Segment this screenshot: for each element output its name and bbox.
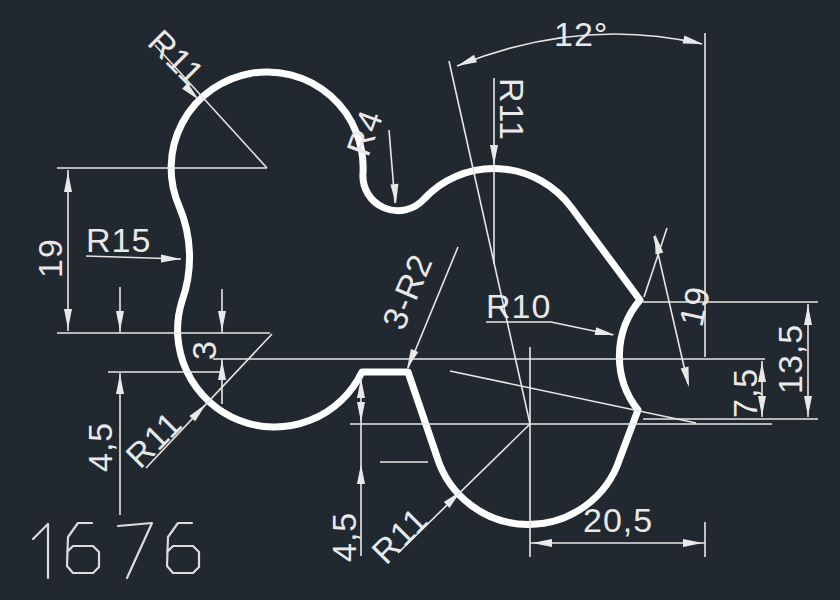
label-offset-right-lower: 7,5	[726, 368, 764, 418]
label-radius-top-left: R11	[141, 22, 212, 93]
label-angle-top: 12°	[554, 15, 608, 53]
label-radius-bottom-right: R11	[364, 500, 435, 571]
label-height-left: 19	[31, 238, 69, 278]
label-radius-bottom-left: R11	[118, 404, 189, 475]
label-width-bottom: 20,5	[583, 501, 653, 539]
drawing-number-digit	[167, 523, 199, 573]
label-offset-right-upper: 13,5	[771, 324, 809, 394]
label-radius-left-waist: R15	[86, 221, 151, 259]
label-radius-top-right: R11	[493, 78, 531, 141]
label-height-right: 19	[672, 283, 717, 330]
cad-drawing: R11 R11 R11 R11 R15 R4 R10 3-R2 12° 19 1…	[0, 0, 840, 600]
label-radius-right-notch: R10	[486, 287, 551, 325]
label-corner-fillets: 3-R2	[374, 248, 439, 334]
drawing-number-digit	[33, 524, 48, 578]
label-offset-left: 4,5	[81, 422, 119, 472]
drawing-number-digit	[67, 523, 99, 573]
label-offset-bottom: 4,5	[325, 512, 363, 562]
label-offset-small: 3	[185, 340, 223, 360]
labels: R11 R11 R11 R11 R15 R4 R10 3-R2 12° 19 1…	[31, 15, 809, 571]
drawing-number-digit	[118, 523, 152, 578]
drawing-number	[33, 523, 199, 578]
cad-canvas: R11 R11 R11 R11 R15 R4 R10 3-R2 12° 19 1…	[0, 0, 840, 600]
